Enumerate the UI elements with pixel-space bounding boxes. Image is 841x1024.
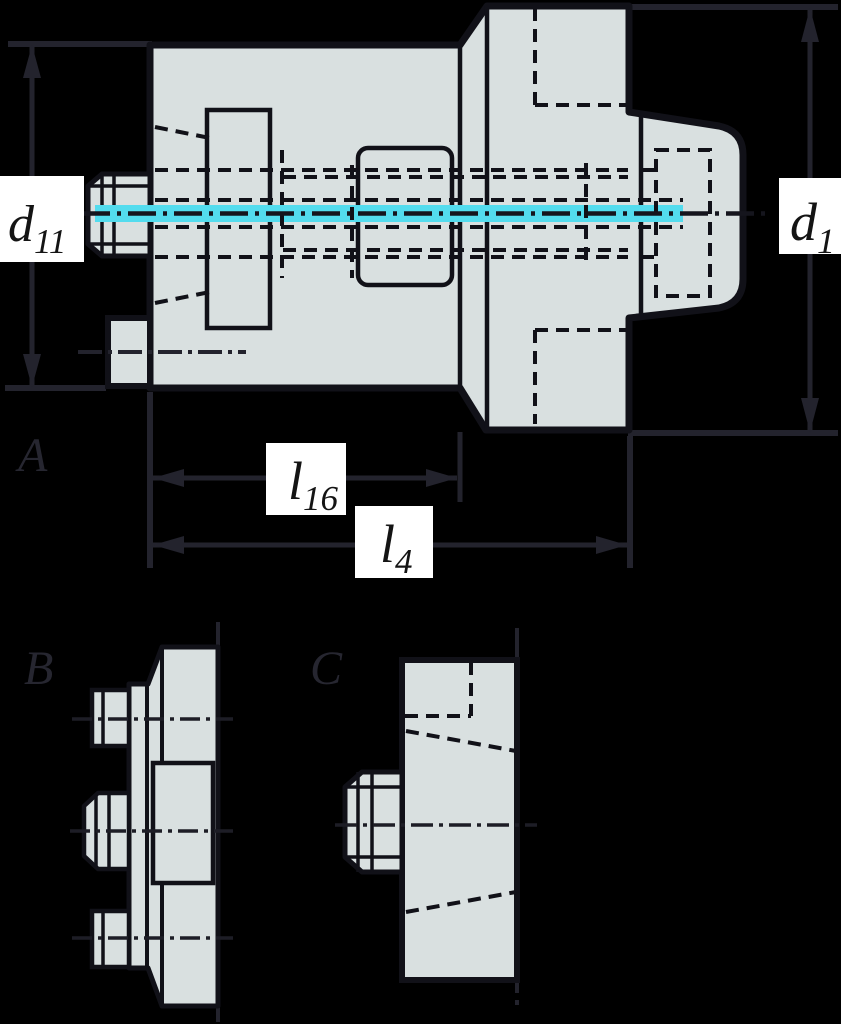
d11-arrow-down [23, 354, 41, 387]
main-view: d11 d1 l16 l4 A [0, 6, 841, 581]
view-b-bolts [84, 690, 129, 967]
d11-arrow-up [23, 45, 41, 78]
l4-arrow-left [153, 536, 184, 554]
d1-arrow-down [801, 398, 819, 432]
l4-arrow-right [596, 536, 627, 554]
view-letter-b: B [24, 642, 53, 695]
label-l16: l16 [266, 443, 346, 518]
view-letter-a: A [15, 429, 48, 482]
view-c: C [310, 628, 537, 1012]
view-letter-c: C [310, 642, 343, 695]
label-l4: l4 [355, 506, 433, 581]
drawing-canvas: d11 d1 l16 l4 A B [0, 0, 841, 1024]
label-d1: d1 [779, 178, 841, 261]
l16-arrow-right [426, 469, 457, 487]
view-c-body [402, 660, 517, 980]
label-d11: d11 [0, 176, 84, 262]
technical-drawing: d11 d1 l16 l4 A B [0, 0, 841, 1024]
l16-arrow-left [153, 469, 184, 487]
view-b-center-boss [153, 763, 213, 883]
view-b: B [24, 622, 233, 1024]
d1-arrow-up [801, 8, 819, 42]
